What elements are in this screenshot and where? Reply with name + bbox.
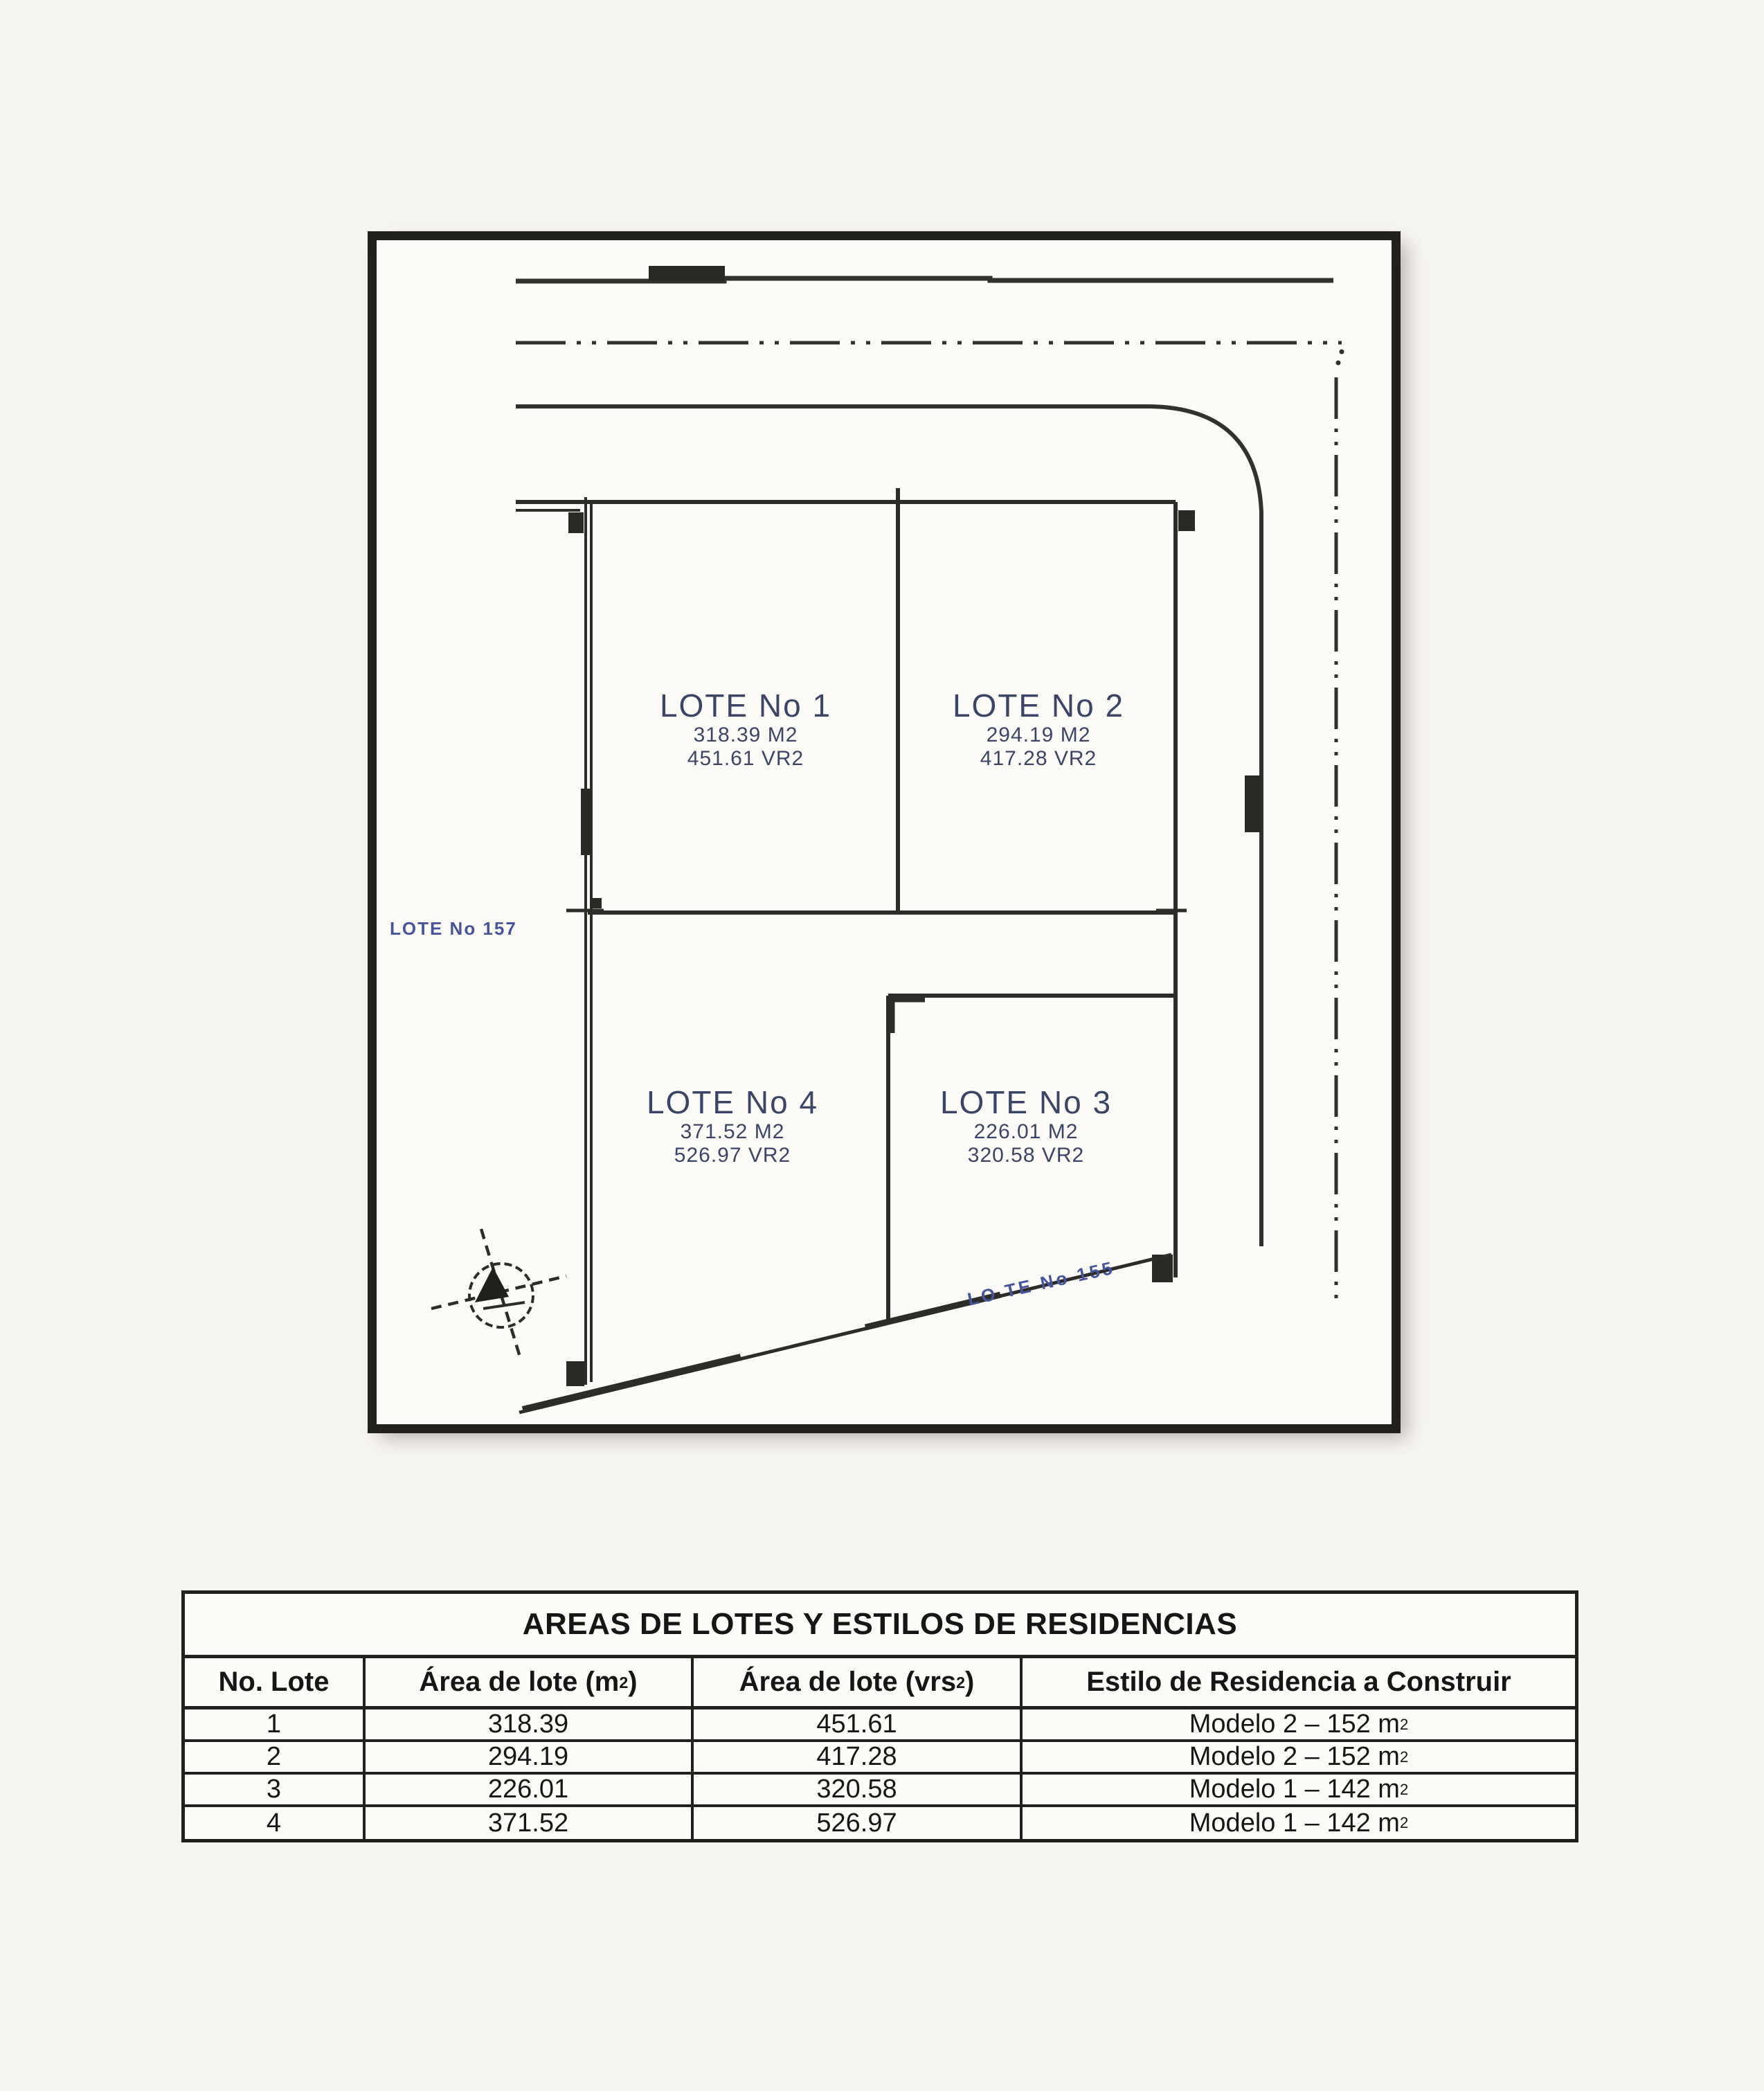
table-row: 1 318.39 451.61 Modelo 2 – 152 m2 (185, 1709, 1575, 1742)
lots-areas-table: AREAS DE LOTES Y ESTILOS DE RESIDENCIAS … (181, 1590, 1578, 1842)
corner-marker-top-right (1178, 510, 1195, 531)
street-marker-block (649, 266, 725, 281)
cell-lot-number: 4 (185, 1807, 366, 1839)
header-area-m2: Área de lote (m2) (366, 1658, 694, 1706)
lot-2-area-vr2: 417.28 VR2 (893, 747, 1184, 771)
lot-4-title: LOTE No 4 (587, 1084, 878, 1120)
cell-area-vrs2: 417.28 (694, 1742, 1023, 1772)
lot-3-area-m2: 226.01 M2 (881, 1120, 1171, 1144)
table-row: 3 226.01 320.58 Modelo 1 – 142 m2 (185, 1775, 1575, 1807)
neighbor-lot-157-label: LOTE No 157 (390, 918, 517, 940)
cell-lot-number: 1 (185, 1709, 366, 1739)
scanned-document-page: LOTE No 1 318.39 M2 451.61 VR2 LOTE No 2… (0, 0, 1764, 2091)
header-area-vrs2: Área de lote (vrs2) (694, 1658, 1023, 1706)
lot-2-title: LOTE No 2 (893, 688, 1184, 724)
cell-area-m2: 371.52 (366, 1807, 694, 1839)
cell-estilo: Modelo 2 – 152 m2 (1023, 1709, 1575, 1739)
lot3-corner-bracket (892, 999, 925, 1033)
corner-marker-bottom-left (566, 1361, 584, 1386)
north-arrow-icon (475, 1267, 509, 1302)
lot-1-area-vr2: 451.61 VR2 (600, 747, 891, 771)
cell-area-vrs2: 451.61 (694, 1709, 1023, 1739)
cell-area-vrs2: 526.97 (694, 1807, 1023, 1839)
lot-1-area-m2: 318.39 M2 (600, 724, 891, 747)
compass-rose (431, 1229, 566, 1359)
centerline-dot (1336, 361, 1341, 366)
curb-marker (1245, 775, 1261, 832)
table-row: 2 294.19 417.28 Modelo 2 – 152 m2 (185, 1742, 1575, 1775)
divider-left-bracket (590, 898, 602, 908)
header-no-lote: No. Lote (185, 1658, 366, 1706)
left-boundary-marker (581, 789, 591, 855)
table-title: AREAS DE LOTES Y ESTILOS DE RESIDENCIAS (185, 1594, 1575, 1658)
diagonal-thick-segment-1 (523, 1357, 741, 1410)
cell-area-m2: 294.19 (366, 1742, 694, 1772)
street-curb-top (516, 278, 1333, 281)
lot-4-area-vr2: 526.97 VR2 (587, 1144, 878, 1167)
lot-2-area-m2: 294.19 M2 (893, 724, 1184, 747)
cell-area-m2: 318.39 (366, 1709, 694, 1739)
cell-estilo: Modelo 1 – 142 m2 (1023, 1807, 1575, 1839)
lot-3-title: LOTE No 3 (881, 1084, 1171, 1120)
cell-lot-number: 2 (185, 1742, 366, 1772)
lot-3-area-vr2: 320.58 VR2 (881, 1144, 1171, 1167)
corner-marker-top-left (568, 512, 584, 533)
lot-3-label: LOTE No 3 226.01 M2 320.58 VR2 (881, 1084, 1171, 1167)
lot-4-label: LOTE No 4 371.52 M2 526.97 VR2 (587, 1084, 878, 1167)
cell-area-vrs2: 320.58 (694, 1775, 1023, 1804)
lot-2-label: LOTE No 2 294.19 M2 417.28 VR2 (893, 688, 1184, 771)
lot-boundaries (516, 488, 1195, 1386)
lot-4-area-m2: 371.52 M2 (587, 1120, 878, 1144)
cell-area-m2: 226.01 (366, 1775, 694, 1804)
cell-estilo: Modelo 2 – 152 m2 (1023, 1742, 1575, 1772)
lot-1-label: LOTE No 1 318.39 M2 451.61 VR2 (600, 688, 891, 771)
table-header-row: No. Lote Área de lote (m2) Área de lote … (185, 1658, 1575, 1709)
table-row: 4 371.52 526.97 Modelo 1 – 142 m2 (185, 1807, 1575, 1839)
header-estilo: Estilo de Residencia a Construir (1023, 1658, 1575, 1706)
centerline-dot (1340, 350, 1344, 355)
cell-estilo: Modelo 1 – 142 m2 (1023, 1775, 1575, 1804)
cell-lot-number: 3 (185, 1775, 366, 1804)
lot-1-title: LOTE No 1 (600, 688, 891, 724)
